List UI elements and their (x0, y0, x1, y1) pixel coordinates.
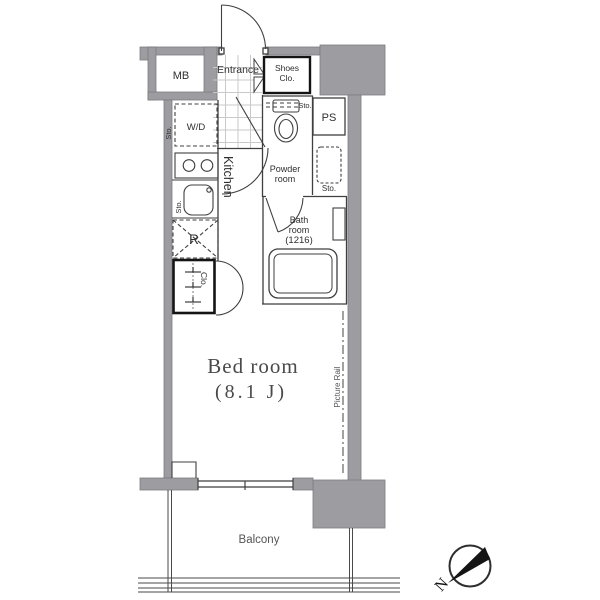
window-step (172, 462, 196, 478)
wall-door-right (266, 47, 320, 55)
floor-plan-svg: N MB Entrance Shoes Clo. PS W/D Sto. Kit… (0, 0, 600, 600)
label-powder-1: Powder (270, 164, 301, 174)
toilet (273, 100, 299, 142)
label-mb: MB (173, 70, 190, 82)
label-sto-wd: Sto. (164, 126, 173, 139)
label-powder-2: room (275, 174, 296, 184)
big-labels: Bed room (8.1 J) Balcony (207, 354, 298, 546)
label-shoes-1: Shoes (275, 63, 299, 73)
storage-cabinet (317, 147, 341, 183)
label-bath-2: room (289, 225, 310, 235)
compass: N (432, 546, 491, 595)
label-balcony: Balcony (239, 534, 280, 546)
closet-doors (216, 261, 243, 315)
wall-right-column (348, 95, 361, 481)
entrance-door (222, 5, 266, 51)
wall-mb-bottom (148, 92, 217, 100)
wall-south-left (140, 478, 198, 490)
wall-south-mid (293, 478, 313, 490)
label-picture-rail: Picture Rail (333, 366, 342, 407)
label-closet: Clo. (199, 272, 209, 287)
bathtub (269, 249, 337, 298)
wall-block-top-right (320, 45, 385, 95)
label-fridge: R (189, 232, 199, 247)
label-entrance: Entrance (217, 64, 259, 76)
label-wd: W/D (187, 122, 206, 133)
wall-left (164, 100, 172, 478)
label-bedroom-size: (8.1 J) (215, 381, 287, 403)
label-kitchen: Kitchen (221, 156, 235, 198)
bath-counter (333, 208, 345, 240)
stove (175, 153, 218, 178)
label-shoes-2: Clo. (279, 73, 294, 83)
dashed-elements (173, 103, 343, 474)
label-ps: PS (322, 112, 337, 124)
label-sto-toilet: Sto. (298, 101, 311, 110)
label-bath-1: Bath (290, 215, 309, 225)
north-label: N (432, 575, 453, 595)
wall-block-bottom-right (313, 480, 385, 528)
label-bath-size: (1216) (285, 235, 312, 246)
floor-plan: N MB Entrance Shoes Clo. PS W/D Sto. Kit… (0, 0, 600, 600)
label-sto-sink: Sto. (174, 200, 183, 213)
toilet-overhead-storage (266, 103, 298, 107)
label-sto-cabinet: Sto. (322, 184, 336, 193)
label-bedroom: Bed room (207, 354, 298, 378)
balcony-window (198, 478, 293, 490)
